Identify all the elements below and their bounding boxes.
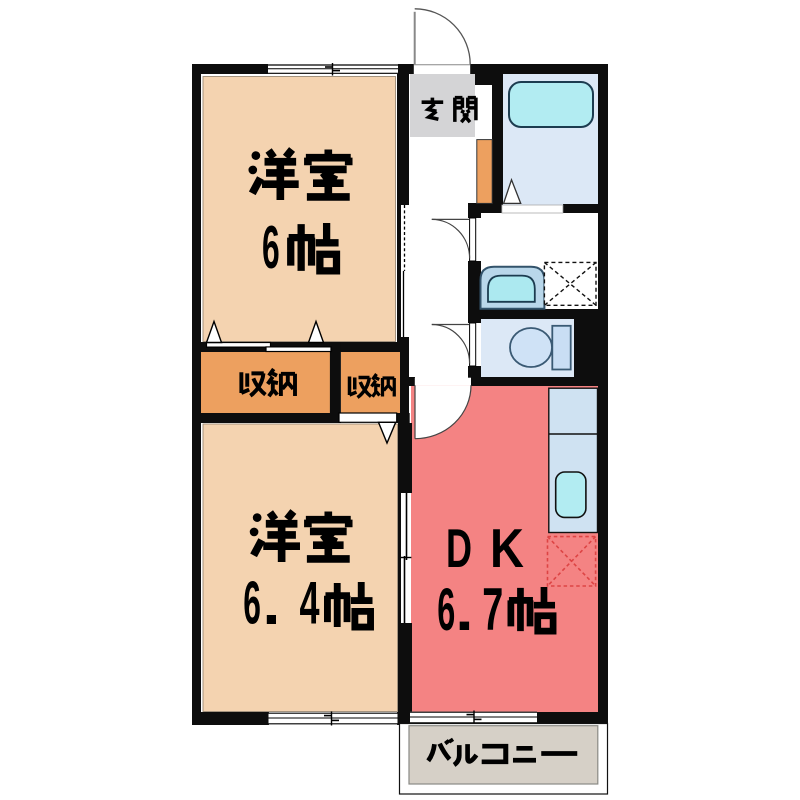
svg-text:K: K [490, 518, 524, 579]
svg-text:4: 4 [300, 570, 320, 637]
svg-text:6: 6 [262, 215, 280, 281]
svg-text:D: D [446, 517, 472, 578]
svg-text:6: 6 [243, 571, 261, 637]
svg-text:7: 7 [482, 576, 503, 643]
svg-text:6: 6 [437, 576, 455, 643]
